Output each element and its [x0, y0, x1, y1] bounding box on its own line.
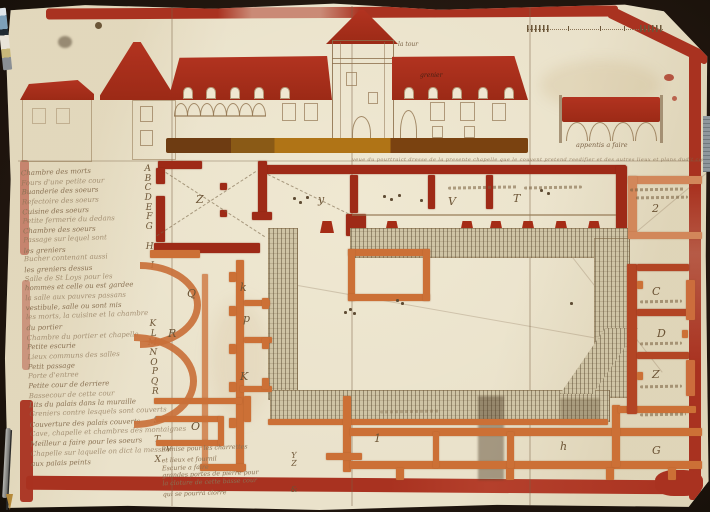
- room-letter: 2: [652, 202, 659, 215]
- left-building-roof: [20, 80, 94, 100]
- book-edge: [703, 116, 710, 172]
- room-letter: T: [513, 192, 520, 205]
- arcade-caption: appentis a faire: [576, 141, 628, 149]
- legend-text: Petit passage: [28, 361, 76, 371]
- roof-label: grenier: [420, 72, 442, 79]
- manuscript-paper-sheet: la tour grenier appentis a faire veue du…: [0, 0, 710, 512]
- room-letter: h: [560, 440, 567, 453]
- note-text: qui se pourra clorre: [163, 489, 227, 498]
- legend-ref: A: [144, 164, 151, 174]
- legend-ref: X: [154, 454, 161, 464]
- note-ref: Z: [291, 459, 297, 468]
- room-letter: Z: [196, 193, 204, 206]
- legend-text: Petite escurie: [27, 342, 76, 352]
- bottom-left-notes: Remise pour les charretteset lieux et fo…: [161, 442, 298, 498]
- chapel-door: [400, 110, 417, 139]
- legend-ref: G: [146, 222, 154, 232]
- room-letter: D: [657, 327, 666, 340]
- room-letter: O: [191, 420, 200, 433]
- legend-ref: F: [146, 212, 153, 222]
- room-letter: Z: [652, 368, 660, 381]
- room-letter: V: [448, 195, 456, 208]
- photo-of-manuscript-plan: { "elevation": { "tower_label": "la tour…: [0, 0, 710, 512]
- legend-text: aux palais peints: [31, 458, 91, 468]
- left-building-facade: [22, 96, 92, 162]
- room-letter: Q: [187, 287, 196, 300]
- legend-text: du portier: [26, 323, 62, 332]
- ground-band: [166, 138, 528, 153]
- room-letter: K: [240, 370, 248, 383]
- room-letter: R: [168, 327, 176, 340]
- room-letter: 1: [374, 432, 381, 445]
- tower-label: la tour: [398, 41, 418, 48]
- room-letter: G: [652, 444, 661, 457]
- room-letter: C: [652, 285, 660, 298]
- room-letter: p: [243, 312, 250, 325]
- arcade-roof-band: [562, 97, 660, 122]
- room-letter: k: [240, 281, 247, 294]
- elevation-caption: veue du pourtraict dresse de la presente…: [352, 157, 652, 163]
- note-ref: &: [290, 485, 297, 494]
- gable-roof: [100, 42, 174, 100]
- room-letter: y: [318, 193, 324, 206]
